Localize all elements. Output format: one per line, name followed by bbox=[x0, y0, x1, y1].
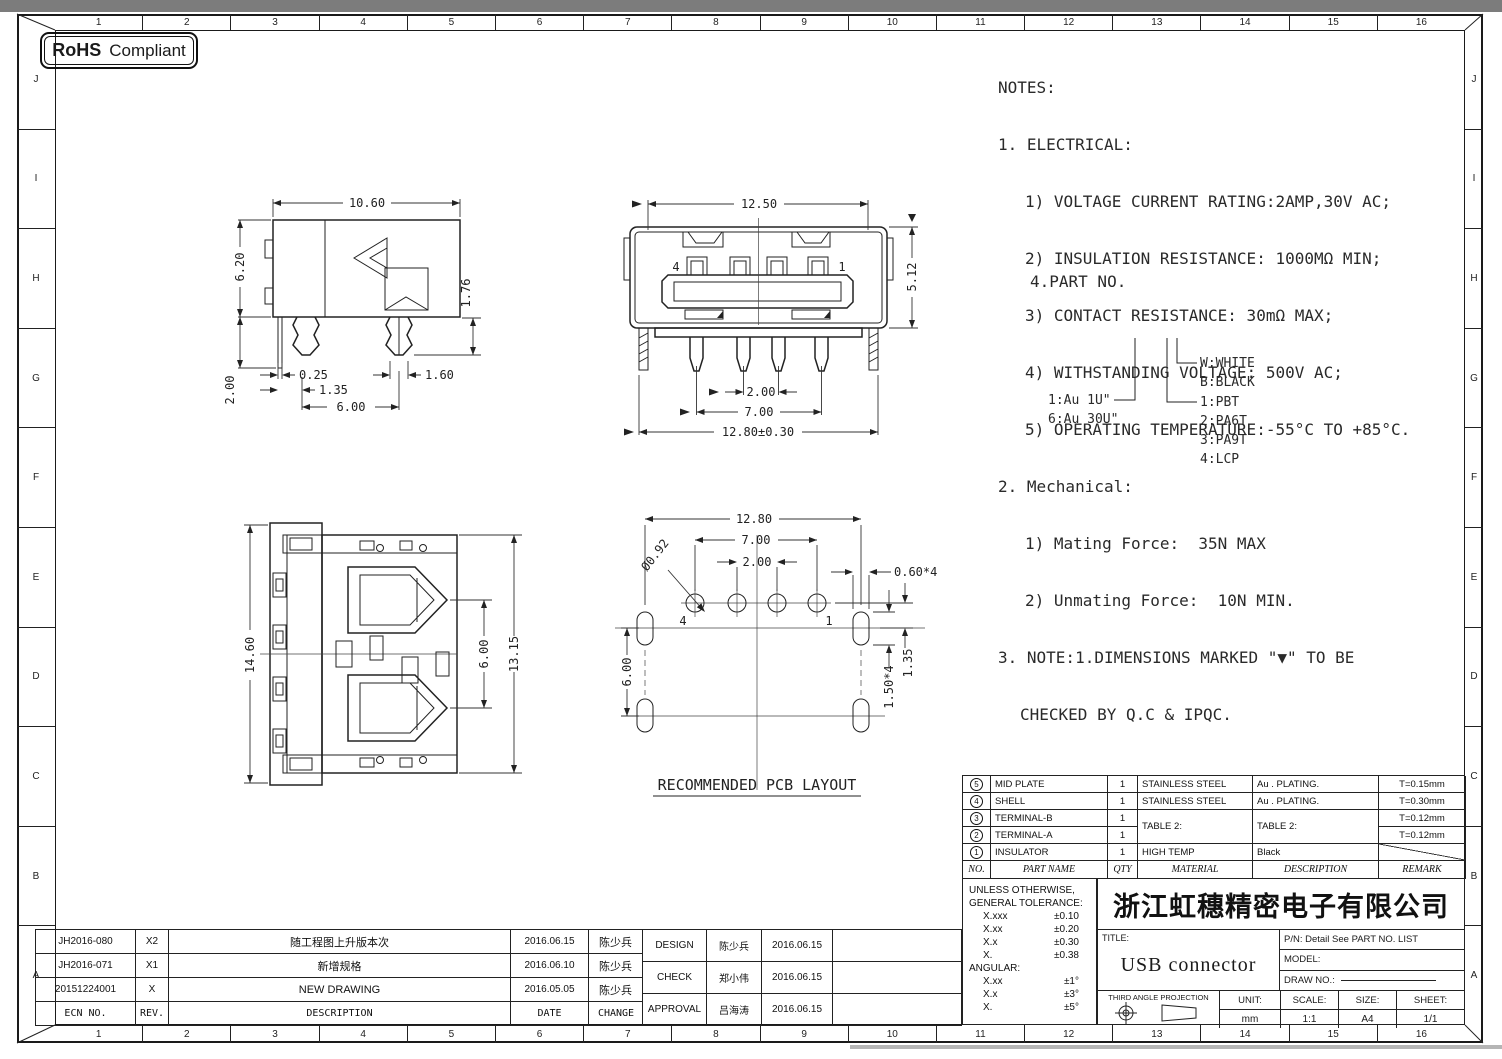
tol-value: ±0.30 bbox=[1054, 936, 1079, 949]
part-name-cell: MID PLATE bbox=[991, 776, 1108, 793]
part-description-cell: Black bbox=[1253, 844, 1379, 861]
tol-label: X. bbox=[983, 1001, 992, 1014]
dim-pcb-200: 2.00 bbox=[743, 555, 772, 569]
part-remark-cell: T=0.15mm bbox=[1379, 776, 1466, 793]
approval-row: APPROVAL 吕海涛 2016.06.15 bbox=[643, 994, 961, 1026]
grid-rows-left: JIHGFEDCBA bbox=[17, 30, 55, 1025]
dim-side-025: 0.25 bbox=[299, 368, 328, 382]
part-no-circle: 4 bbox=[970, 795, 983, 808]
dim-front-overall: 12.80±0.30 bbox=[722, 425, 794, 439]
approval-row: CHECK 郑小伟 2016.06.15 bbox=[643, 962, 961, 994]
grid-column-label: 4 bbox=[320, 1025, 408, 1043]
pcb-pin-label-1: 1 bbox=[825, 614, 832, 628]
note-line: 1. ELECTRICAL: bbox=[998, 135, 1468, 154]
dim-side-height: 6.20 bbox=[233, 253, 247, 282]
grid-column-label: 7 bbox=[584, 1025, 672, 1043]
grid-row-label: G bbox=[17, 329, 55, 429]
grid-column-label: 2 bbox=[143, 14, 231, 30]
part-no-circle: 1 bbox=[970, 846, 983, 859]
scale-value: 1:1 bbox=[1281, 1010, 1338, 1028]
grid-columns-top: 12345678910111213141516 bbox=[55, 14, 1465, 30]
title-label: TITLE: bbox=[1102, 933, 1129, 943]
note-line: 3. NOTE:1.DIMENSIONS MARKED "▼" TO BE bbox=[998, 648, 1468, 667]
approval-name: 郑小伟 bbox=[707, 962, 762, 994]
approval-extra-cell bbox=[833, 994, 961, 1026]
unit-value: mm bbox=[1220, 1010, 1280, 1028]
angular-label: ANGULAR: bbox=[969, 962, 1090, 975]
part-name-cell: TERMINAL-A bbox=[991, 827, 1108, 844]
tol-label: X. bbox=[983, 949, 992, 962]
part-name-cell: INSULATOR bbox=[991, 844, 1108, 861]
revision-header-description: DESCRIPTION bbox=[169, 1002, 511, 1026]
parts-header-no: NO. bbox=[963, 861, 991, 879]
note-line: 2) INSULATION RESISTANCE: 1000MΩ MIN; bbox=[998, 249, 1468, 268]
grid-column-label: 9 bbox=[761, 1025, 849, 1043]
notes-title: NOTES: bbox=[998, 78, 1468, 97]
grid-column-label: 3 bbox=[231, 14, 319, 30]
part-no-circle: 5 bbox=[970, 778, 983, 791]
approval-date: 2016.06.15 bbox=[762, 994, 833, 1026]
grid-row-label: B bbox=[17, 827, 55, 927]
revision-ecn: 20151224001 bbox=[36, 978, 136, 1002]
rohs-badge: RoHS Compliant bbox=[40, 32, 198, 69]
part-description-merged-cell: TABLE 2: bbox=[1253, 810, 1379, 844]
projection-cell: THIRD ANGLE PROJECTION bbox=[1098, 991, 1220, 1028]
dim-side-leg: 2.00 bbox=[223, 376, 237, 405]
grid-column-label: 6 bbox=[496, 1025, 584, 1043]
plating-option-6: 6:Au 30U" bbox=[1048, 412, 1118, 427]
grid-column-label: 15 bbox=[1290, 14, 1378, 30]
grid-column-label: 3 bbox=[231, 1025, 319, 1043]
revision-date: 2016.06.10 bbox=[511, 954, 589, 978]
approval-extra-cell bbox=[833, 930, 961, 962]
revision-header-rev: REV. bbox=[136, 1002, 169, 1026]
tol-value: ±1° bbox=[1064, 975, 1079, 988]
grid-column-label: 10 bbox=[849, 14, 937, 30]
dim-top-height: 14.60 bbox=[243, 637, 257, 673]
part-number-tree: 1:Au 1U" 6:Au 30U" W:WHITE B:BLACK 1:PBT… bbox=[1040, 330, 1280, 480]
material-option-lcp: 4:LCP bbox=[1200, 452, 1239, 467]
dim-top-600: 6.00 bbox=[477, 640, 491, 669]
part-name-cell: SHELL bbox=[991, 793, 1108, 810]
revision-rev: X2 bbox=[136, 930, 169, 954]
tol-label: X.x bbox=[983, 936, 997, 949]
grid-column-label: 9 bbox=[761, 14, 849, 30]
dim-side-pin-height: 1.76 bbox=[459, 279, 473, 308]
pin-label-4: 4 bbox=[672, 260, 679, 274]
part-description-cell: Au . PLATING. bbox=[1253, 793, 1379, 810]
approval-extra-cell bbox=[833, 962, 961, 994]
grid-column-label: 5 bbox=[408, 1025, 496, 1043]
dim-pcb-135: 1.35 bbox=[901, 649, 915, 678]
revision-rev: X bbox=[136, 978, 169, 1002]
drawing-side-view: 10.60 6.20 2.00 1.76 0.25 1.35 1.60 6.00 bbox=[215, 185, 515, 435]
tol-label: X.xxx bbox=[983, 910, 1007, 923]
drawing-top-view: 14.60 6.00 13.15 bbox=[210, 505, 530, 805]
revision-header-date: DATE bbox=[511, 1002, 589, 1026]
third-angle-projection-symbol bbox=[1104, 1002, 1214, 1024]
grid-column-label: 1 bbox=[55, 1025, 143, 1043]
grid-row-label: A bbox=[1465, 926, 1483, 1025]
revision-rev: X1 bbox=[136, 954, 169, 978]
revision-change-by: 陈少兵 bbox=[589, 930, 642, 954]
dim-front-width: 12.50 bbox=[741, 197, 777, 211]
tol-label: X.xx bbox=[983, 923, 1002, 936]
revision-row: 20151224001 X NEW DRAWING 2016.05.05 陈少兵 bbox=[36, 978, 642, 1002]
revision-ecn: JH2016-071 bbox=[36, 954, 136, 978]
grid-row-label: B bbox=[1465, 827, 1483, 927]
revision-row: JH2016-071 X1 新增规格 2016.06.10 陈少兵 bbox=[36, 954, 642, 978]
part-remark-cell: T=0.30mm bbox=[1379, 793, 1466, 810]
tol-label: X.x bbox=[983, 988, 997, 1001]
drawing-pcb-layout: 4 1 12.80 7.00 2.00 Ø0.92 0.60*4 1.35 1.… bbox=[595, 505, 945, 805]
material-option-pa9t: 3:PA9T bbox=[1200, 433, 1247, 448]
tolerance-line1: UNLESS OTHERWISE, bbox=[969, 884, 1090, 897]
dim-top-1315: 13.15 bbox=[507, 636, 521, 672]
draw-no-line bbox=[1341, 980, 1436, 981]
scale-label: SCALE: bbox=[1281, 991, 1338, 1010]
part-remark-empty-cell bbox=[1379, 844, 1466, 861]
rohs-bold: RoHS bbox=[52, 40, 101, 61]
part-no-cell: 5 bbox=[963, 776, 991, 793]
part-description-cell: Au . PLATING. bbox=[1253, 776, 1379, 793]
part-qty-cell: 1 bbox=[1108, 793, 1138, 810]
color-option-white: W:WHITE bbox=[1200, 356, 1255, 371]
color-option-black: B:BLACK bbox=[1200, 375, 1255, 390]
sheet-value: 1/1 bbox=[1397, 1010, 1464, 1028]
bottom-shadow bbox=[850, 1045, 1502, 1049]
tolerance-line2: GENERAL TOLERANCE: bbox=[969, 897, 1090, 910]
note-line: CHECKED BY Q.C & IPQC. bbox=[998, 705, 1468, 724]
part-material-merged-cell: TABLE 2: bbox=[1138, 810, 1253, 844]
grid-column-label: 11 bbox=[937, 14, 1025, 30]
grid-row-label: H bbox=[17, 229, 55, 329]
rohs-rest: Compliant bbox=[109, 41, 186, 61]
grid-column-label: 1 bbox=[55, 14, 143, 30]
approval-row: DESIGN 陈少兵 2016.06.15 bbox=[643, 930, 961, 962]
parts-header-remark: REMARK bbox=[1379, 861, 1466, 879]
note-line: 2) Unmating Force: 10N MIN. bbox=[998, 591, 1468, 610]
top-gray-strip bbox=[0, 0, 1502, 12]
grid-row-label: E bbox=[17, 528, 55, 628]
grid-column-label: 6 bbox=[496, 14, 584, 30]
approval-date: 2016.06.15 bbox=[762, 962, 833, 994]
parts-header-name: PART NAME bbox=[991, 861, 1108, 879]
draw-no-label: DRAW NO.: bbox=[1284, 975, 1335, 986]
dim-side-width: 10.60 bbox=[349, 196, 385, 210]
dim-pcb-600: 6.00 bbox=[620, 658, 634, 687]
note-line: 1) VOLTAGE CURRENT RATING:2AMP,30V AC; bbox=[998, 192, 1468, 211]
parts-header-material: MATERIAL bbox=[1138, 861, 1253, 879]
plating-option-1: 1:Au 1U" bbox=[1048, 393, 1111, 408]
dim-front-pitch: 2.00 bbox=[747, 385, 776, 399]
note-line: 3) CONTACT RESISTANCE: 30mΩ MAX; bbox=[998, 306, 1468, 325]
part-material-cell: STAINLESS STEEL bbox=[1138, 776, 1253, 793]
part-material-cell: STAINLESS STEEL bbox=[1138, 793, 1253, 810]
size-label: SIZE: bbox=[1339, 991, 1396, 1010]
revision-change-by: 陈少兵 bbox=[589, 954, 642, 978]
revision-description: NEW DRAWING bbox=[169, 978, 511, 1002]
part-qty-cell: 1 bbox=[1108, 810, 1138, 827]
grid-column-label: 5 bbox=[408, 14, 496, 30]
revision-header-ecn: ECN NO. bbox=[36, 1002, 136, 1026]
approval-role: DESIGN bbox=[643, 930, 707, 962]
part-no-cell: 1 bbox=[963, 844, 991, 861]
part-no-cell: 4 bbox=[963, 793, 991, 810]
grid-row-label: I bbox=[17, 130, 55, 230]
part-qty-cell: 1 bbox=[1108, 827, 1138, 844]
grid-row-label: F bbox=[17, 428, 55, 528]
pcb-pin-label-4: 4 bbox=[679, 614, 686, 628]
approval-name: 吕海涛 bbox=[707, 994, 762, 1026]
tol-label: X.xx bbox=[983, 975, 1002, 988]
drawing-front-view: 4 1 12.50 5.12 2.00 7.00 12.80±0.30 bbox=[622, 190, 937, 455]
projection-label: THIRD ANGLE PROJECTION bbox=[1098, 991, 1219, 1002]
dim-side-600: 6.00 bbox=[337, 400, 366, 414]
grid-column-label: 8 bbox=[672, 1025, 760, 1043]
pin-label-1: 1 bbox=[838, 260, 845, 274]
revision-description: 随工程图上升版本次 bbox=[169, 930, 511, 954]
tol-value: ±5° bbox=[1064, 1001, 1079, 1014]
dim-pcb-1280: 12.80 bbox=[736, 512, 772, 526]
revision-date: 2016.05.05 bbox=[511, 978, 589, 1002]
part-name-cell: TERMINAL-B bbox=[991, 810, 1108, 827]
parts-header-description: DESCRIPTION bbox=[1253, 861, 1379, 879]
engineering-drawing-sheet: { "rohs": {"bold": "RoHS", "rest": "Comp… bbox=[0, 0, 1502, 1059]
size-value: A4 bbox=[1339, 1010, 1396, 1028]
part-qty-cell: 1 bbox=[1108, 844, 1138, 861]
grid-column-label: 16 bbox=[1378, 14, 1465, 30]
grid-row-label: D bbox=[17, 628, 55, 728]
sheet-label: SHEET: bbox=[1397, 991, 1464, 1010]
pcb-layout-title: RECOMMENDED PCB LAYOUT bbox=[658, 776, 857, 794]
dim-side-160: 1.60 bbox=[425, 368, 454, 382]
part-no-circle: 2 bbox=[970, 829, 983, 842]
grid-column-label: 13 bbox=[1113, 14, 1201, 30]
material-option-pbt: 1:PBT bbox=[1200, 395, 1239, 410]
revision-header-row: ECN NO. REV. DESCRIPTION DATE CHANGE bbox=[35, 1002, 643, 1026]
dim-side-135: 1.35 bbox=[319, 383, 348, 397]
dim-pcb-700: 7.00 bbox=[742, 533, 771, 547]
revision-ecn: JH2016-080 bbox=[36, 930, 136, 954]
part-material-cell: HIGH TEMP bbox=[1138, 844, 1253, 861]
dim-pcb-150: 1.50*4 bbox=[882, 665, 896, 708]
note-line: 1) Mating Force: 35N MAX bbox=[998, 534, 1468, 553]
grid-column-label: 4 bbox=[320, 14, 408, 30]
revision-date: 2016.06.15 bbox=[511, 930, 589, 954]
approval-date: 2016.06.15 bbox=[762, 930, 833, 962]
title-cell: TITLE: USB connector bbox=[1098, 930, 1280, 990]
part-number-row: P/N: Detail See PART NO. LIST bbox=[1280, 930, 1464, 950]
drawing-title: USB connector bbox=[1098, 954, 1279, 977]
revision-description: 新增规格 bbox=[169, 954, 511, 978]
tolerance-block: UNLESS OTHERWISE, GENERAL TOLERANCE: X.x… bbox=[962, 878, 1097, 1025]
grid-column-label: 2 bbox=[143, 1025, 231, 1043]
approval-table: DESIGN 陈少兵 2016.06.15 CHECK 郑小伟 2016.06.… bbox=[643, 929, 962, 1026]
grid-column-label: 10 bbox=[849, 1025, 937, 1043]
part-qty-cell: 1 bbox=[1108, 776, 1138, 793]
grid-column-label: 12 bbox=[1025, 14, 1113, 30]
tol-value: ±0.20 bbox=[1054, 923, 1079, 936]
grid-row-label: C bbox=[17, 727, 55, 827]
tol-value: ±0.38 bbox=[1054, 949, 1079, 962]
tol-value: ±3° bbox=[1064, 988, 1079, 1001]
parts-header-qty: QTY bbox=[1108, 861, 1138, 879]
dim-front-span: 7.00 bbox=[745, 405, 774, 419]
company-name: 浙江虹穗精密电子有限公司 bbox=[1098, 879, 1464, 930]
revision-row: JH2016-080 X2 随工程图上升版本次 2016.06.15 陈少兵 bbox=[36, 930, 642, 954]
revision-header-change: CHANGE bbox=[589, 1002, 643, 1026]
dim-pcb-hole: Ø0.92 bbox=[638, 536, 671, 573]
title-block: 浙江虹穗精密电子有限公司 TITLE: USB connector P/N: D… bbox=[1097, 878, 1465, 1025]
approval-name: 陈少兵 bbox=[707, 930, 762, 962]
grid-column-label: 14 bbox=[1201, 14, 1289, 30]
revision-change-by: 陈少兵 bbox=[589, 978, 642, 1002]
part-remark-cell: T=0.12mm bbox=[1379, 827, 1466, 844]
approval-role: APPROVAL bbox=[643, 994, 707, 1026]
part-no-cell: 3 bbox=[963, 810, 991, 827]
grid-column-label: 8 bbox=[672, 14, 760, 30]
dim-pcb-060: 0.60*4 bbox=[894, 565, 937, 579]
grid-column-label: 11 bbox=[937, 1025, 1025, 1043]
grid-column-label: 7 bbox=[584, 14, 672, 30]
part-remark-cell: T=0.12mm bbox=[1379, 810, 1466, 827]
tol-value: ±0.10 bbox=[1054, 910, 1079, 923]
dim-front-height: 5.12 bbox=[905, 263, 919, 292]
unit-label: UNIT: bbox=[1220, 991, 1280, 1010]
part-no-cell: 2 bbox=[963, 827, 991, 844]
parts-table: 5 MID PLATE 1 STAINLESS STEEL Au . PLATI… bbox=[962, 775, 1465, 879]
approval-role: CHECK bbox=[643, 962, 707, 994]
part-no-heading: 4.PART NO. bbox=[1030, 272, 1126, 291]
draw-no-row: DRAW NO.: bbox=[1280, 971, 1464, 990]
material-option-pa6t: 2:PA6T bbox=[1200, 414, 1247, 429]
model-row: MODEL: bbox=[1280, 950, 1464, 970]
part-no-circle: 3 bbox=[970, 812, 983, 825]
